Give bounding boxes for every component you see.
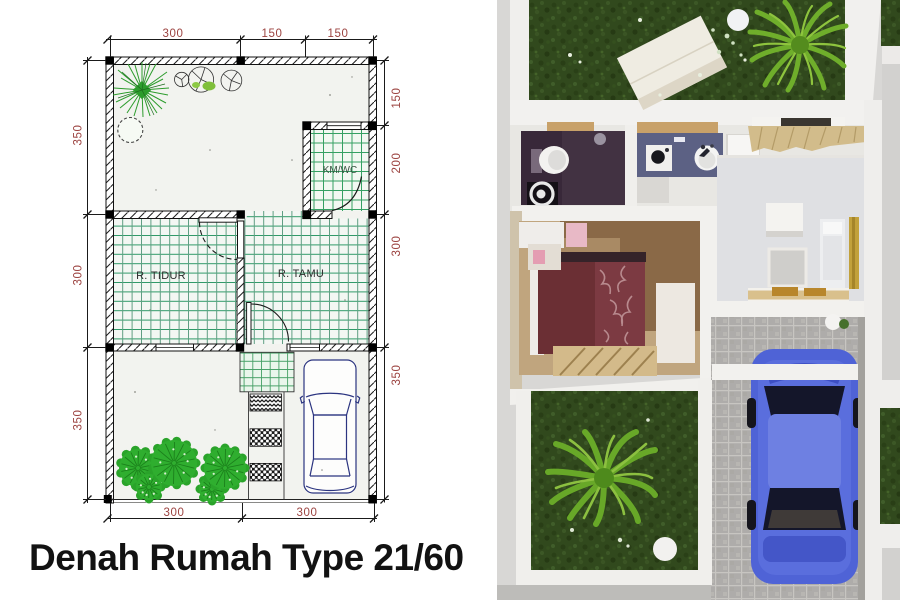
svg-text:350: 350: [73, 410, 85, 431]
svg-text:150: 150: [391, 88, 403, 109]
svg-text:150: 150: [328, 28, 349, 40]
svg-text:R. TAMU: R. TAMU: [278, 268, 324, 280]
svg-text:300: 300: [73, 265, 85, 286]
svg-text:350: 350: [73, 125, 85, 146]
svg-text:350: 350: [391, 365, 403, 386]
svg-text:R. TIDUR: R. TIDUR: [136, 270, 186, 282]
svg-text:150: 150: [262, 28, 283, 40]
svg-text:300: 300: [164, 507, 185, 519]
svg-text:300: 300: [163, 28, 184, 40]
svg-text:300: 300: [391, 236, 403, 257]
svg-text:200: 200: [391, 153, 403, 174]
svg-text:KM/WC: KM/WC: [323, 165, 357, 176]
svg-text:300: 300: [297, 507, 318, 519]
